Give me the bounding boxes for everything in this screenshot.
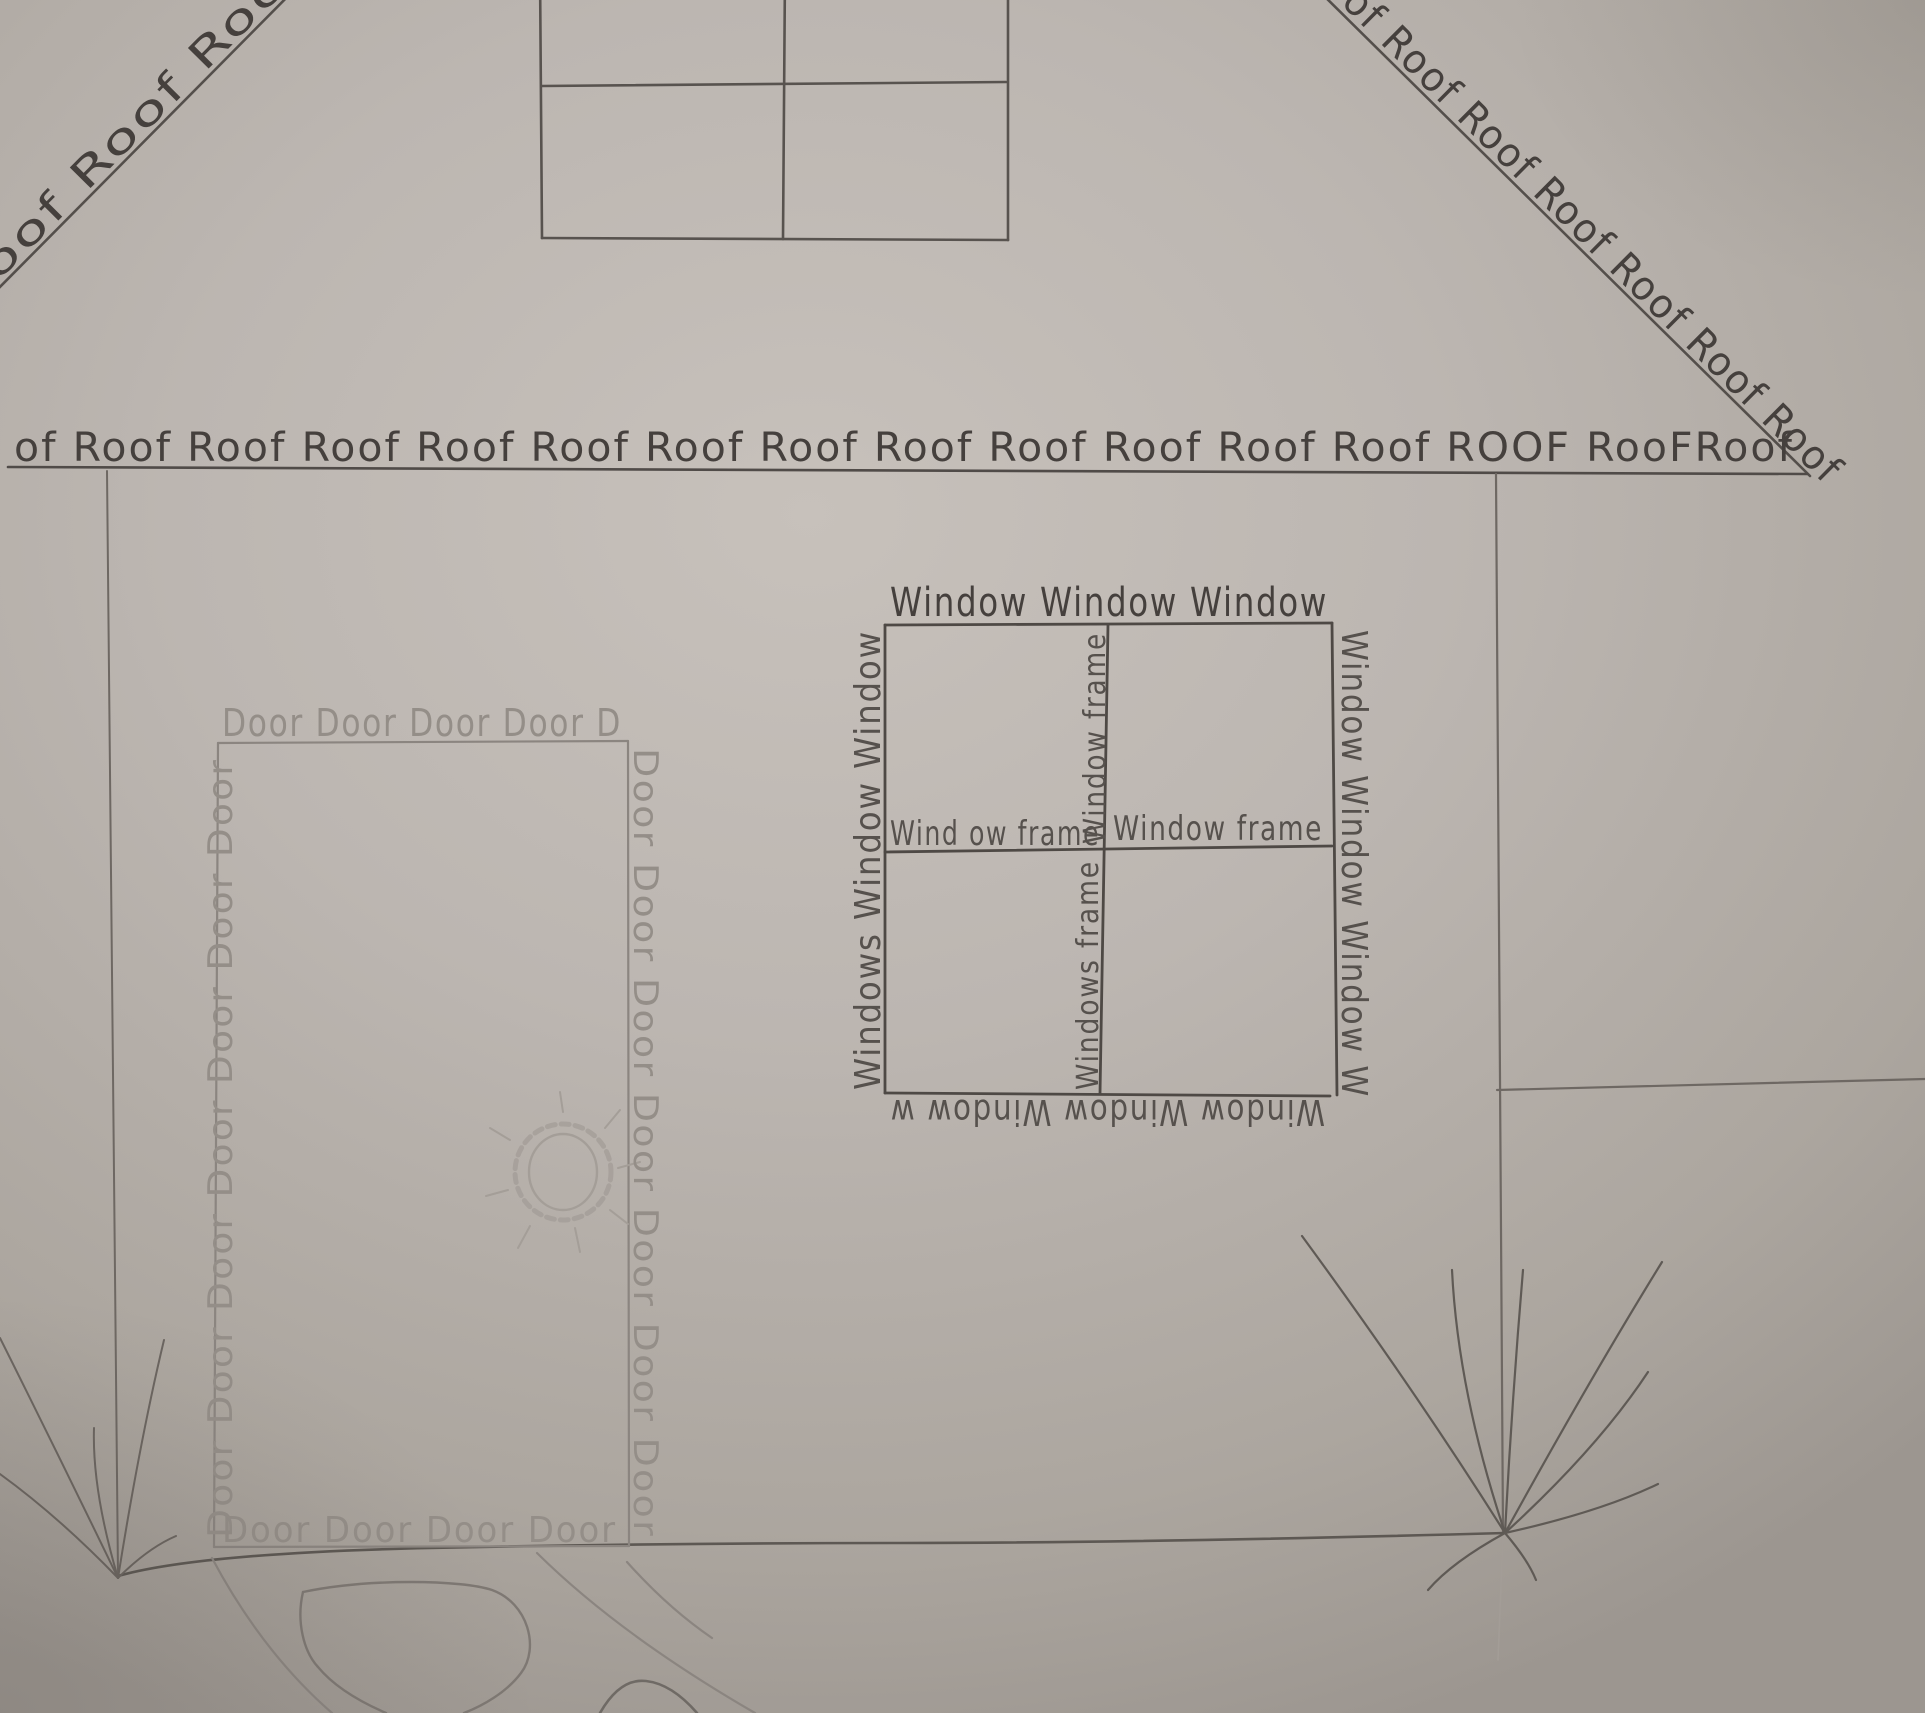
- door-outline: [214, 741, 629, 1547]
- attic-window-bottom-line: [542, 238, 1008, 240]
- stone-outline: [600, 1681, 697, 1713]
- grass-blade: [1505, 1270, 1523, 1533]
- roof-eave-words: of Roof Roof Roof Roof Roof Roof Roof Ro…: [14, 425, 1794, 471]
- roof-right-diagonal-words: oof Roof Roof Roof Roof Roof Roof: [1315, 0, 1851, 493]
- window-right-words: Window Window Window W: [1333, 630, 1374, 1098]
- door-knob-inner-circle: [529, 1134, 597, 1210]
- path-left-edge-curve: [212, 1558, 332, 1713]
- right-interior-wall-line: [1496, 474, 1503, 1532]
- door-right-words: Door Door Door Door Door Door Door: [625, 748, 665, 1538]
- window-top-words: Window Window Window: [890, 580, 1328, 626]
- grass-blade: [0, 1474, 118, 1578]
- grass-blade: [1428, 1533, 1505, 1590]
- path-center-curve: [537, 1553, 755, 1713]
- grass-blade: [1452, 1270, 1505, 1533]
- window-frame-horizontal-left-words: Wind ow frame: [890, 814, 1100, 854]
- left-grass-tuft: [0, 1338, 176, 1578]
- path-stones: [300, 1582, 697, 1713]
- house-word-drawing: of Roof Roof Roof Roof Roof Roof Roof Ro…: [0, 0, 1925, 1713]
- attic-window-vertical-divider-line: [783, 0, 785, 239]
- door-left-words: Door Door Door Door Door Door Door: [201, 758, 241, 1538]
- window-bottom-words: Window Window Window w: [889, 1091, 1325, 1132]
- path-right-edge-curve: [627, 1562, 712, 1638]
- door-bottom-words: Door Door Door Door: [222, 1510, 617, 1551]
- window-frame-horizontal-right-words: Window frame: [1113, 809, 1323, 849]
- path-edges: [212, 1553, 755, 1713]
- grass-blade: [0, 1338, 118, 1578]
- attic-window-horizontal-divider-line: [542, 82, 1006, 86]
- door-knob: [486, 1092, 640, 1252]
- roof-left-diagonal-words: oof Roof Roof: [0, 0, 314, 289]
- left-wall-line: [107, 471, 118, 1576]
- grass-blade: [94, 1428, 118, 1578]
- grass-blade: [1505, 1533, 1536, 1580]
- door-knob-rays: [486, 1092, 640, 1252]
- door-top-words: Door Door Door Door D: [222, 701, 622, 745]
- paper-photo-background: of Roof Roof Roof Roof Roof Roof Roof Ro…: [0, 0, 1925, 1713]
- grass-blade: [118, 1340, 164, 1578]
- window-frame-vertical-bottom-words: Windows frame: [1071, 860, 1106, 1090]
- interior-horizontal-line: [1497, 1079, 1925, 1090]
- grass-blade: [1505, 1372, 1648, 1533]
- grass-blade: [1302, 1236, 1505, 1533]
- attic-window-frame: [540, 0, 1008, 240]
- stone-outline: [303, 1582, 530, 1713]
- window-left-words: Windows Window Window: [848, 630, 889, 1090]
- attic-window-left-line: [540, 0, 542, 238]
- grass-blade: [118, 1536, 176, 1578]
- roof-left-diagonal-line: [0, 0, 302, 297]
- window-frame-vertical-top-words: Window frame: [1078, 632, 1113, 844]
- right-wall-faint-extension-line: [1498, 1535, 1503, 1660]
